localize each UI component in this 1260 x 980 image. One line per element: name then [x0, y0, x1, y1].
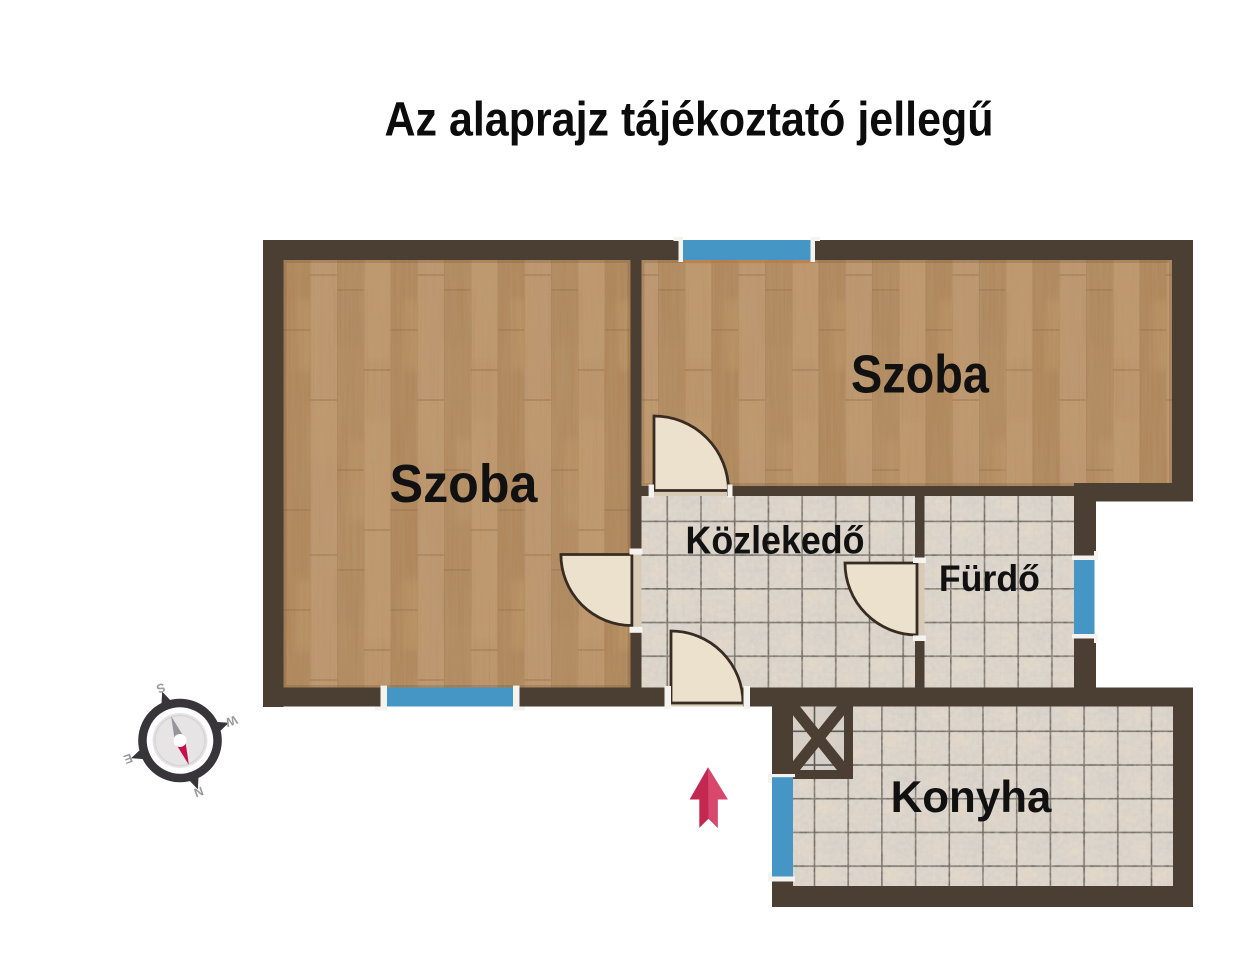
- svg-text:Közlekedő: Közlekedő: [686, 520, 865, 563]
- svg-text:Fürdő: Fürdő: [939, 557, 1040, 599]
- svg-text:Konyha: Konyha: [891, 773, 1053, 822]
- svg-text:Szoba: Szoba: [851, 345, 990, 405]
- svg-text:Az alaprajz tájékoztató jelleg: Az alaprajz tájékoztató jellegű: [385, 93, 994, 146]
- svg-text:Szoba: Szoba: [390, 454, 539, 514]
